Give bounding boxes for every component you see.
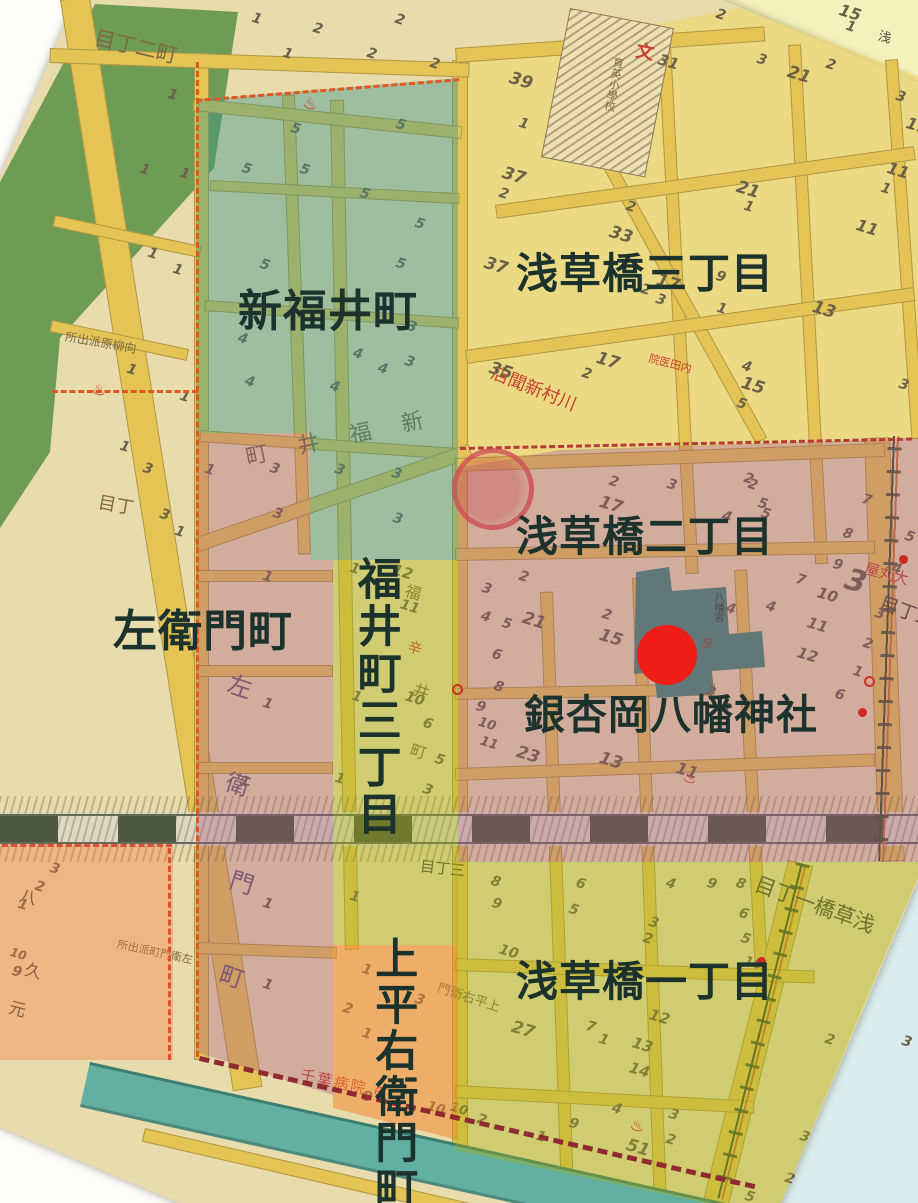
red-dot-symbol xyxy=(858,708,867,717)
red-ring-symbol xyxy=(864,676,875,687)
school-symbol: 文 xyxy=(634,37,657,66)
district-label-asakusabashi-3: 浅草橋三丁目 xyxy=(516,252,774,296)
district-label-asakusabashi-2: 浅草橋二丁目 xyxy=(516,515,774,559)
red-dot-symbol xyxy=(899,555,908,564)
district-label-ichogaoka-hachiman-jinja: 銀杏岡八幡神社 xyxy=(524,694,818,737)
district-label-fukui-cho-3: 福井町三丁目 xyxy=(352,556,398,838)
district-label-shin-fukui-cho: 新福井町 xyxy=(238,289,418,335)
boundary-dash xyxy=(52,390,198,393)
district-label-kami-heiemon-cho: 上平右衛門町 xyxy=(370,936,415,1203)
vintage-map-screenshot: 文 育英小學校 町二丁目丁目町 井 福 新向柳原派出所左衛門町派出所川村新聞店内… xyxy=(0,0,918,1203)
shrine-location-dot xyxy=(637,625,697,685)
boundary-dash xyxy=(2,844,172,847)
red-ring-symbol xyxy=(452,684,463,695)
boundary-dash xyxy=(196,62,199,1057)
district-label-asakusabashi-1: 浅草橋一丁目 xyxy=(516,960,774,1004)
school-name: 育英小學校 xyxy=(600,56,626,113)
district-label-saemon-cho: 左衛門町 xyxy=(113,609,293,655)
scan-text: 丁目 xyxy=(88,492,134,555)
boundary-dash xyxy=(168,848,171,1060)
